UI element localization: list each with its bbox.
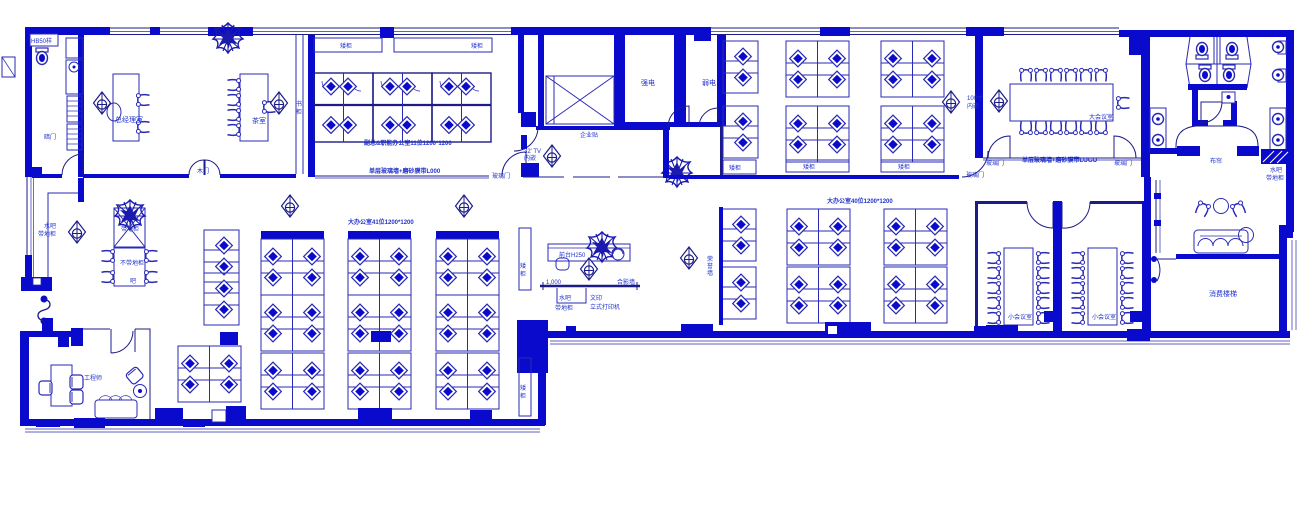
svg-text:大办公室40位1200*1200: 大办公室40位1200*1200	[827, 197, 893, 205]
svg-text:弱电: 弱电	[702, 78, 716, 87]
svg-text:100寸: 100寸	[967, 94, 983, 102]
svg-text:大办公室41位1200*1200: 大办公室41位1200*1200	[348, 218, 414, 226]
svg-text:文印: 文印	[590, 294, 602, 302]
svg-text:玻璃门: 玻璃门	[1114, 159, 1132, 167]
svg-text:内嵌: 内嵌	[524, 154, 536, 162]
svg-text:合影墙: 合影墙	[617, 278, 635, 286]
svg-text:吧: 吧	[130, 278, 136, 285]
svg-text:矮柜: 矮柜	[520, 262, 526, 278]
svg-text:玻璃门: 玻璃门	[986, 159, 1004, 167]
svg-text:小会议室: 小会议室	[1008, 313, 1032, 321]
svg-text:立式打印机: 立式打印机	[590, 303, 620, 311]
svg-text:水吧: 水吧	[559, 294, 571, 302]
svg-text:暗门: 暗门	[44, 133, 56, 141]
svg-text:大会议室: 大会议室	[1089, 113, 1113, 121]
svg-text:木门: 木门	[197, 167, 209, 175]
svg-text:企业贴: 企业贴	[580, 131, 598, 139]
svg-text:书柜: 书柜	[296, 100, 302, 116]
svg-text:单层玻璃墙+磨砂膜带L000: 单层玻璃墙+磨砂膜带L000	[369, 167, 441, 175]
svg-text:布帘: 布帘	[1210, 157, 1222, 165]
svg-text:茶室: 茶室	[252, 116, 266, 125]
svg-text:水吧: 水吧	[1270, 166, 1282, 174]
svg-text:矮柜: 矮柜	[471, 42, 483, 50]
svg-text:矮柜: 矮柜	[340, 42, 352, 50]
svg-text:荣誉墙: 荣誉墙	[707, 255, 713, 277]
svg-text:矮柜: 矮柜	[729, 164, 741, 172]
svg-text:消费楼梯: 消费楼梯	[1209, 289, 1237, 298]
svg-text:矮柜: 矮柜	[803, 163, 815, 171]
svg-text:矮柜: 矮柜	[898, 163, 910, 171]
svg-text:内嵌: 内嵌	[967, 102, 979, 110]
svg-text:1,000: 1,000	[546, 280, 562, 286]
svg-text:带地柜: 带地柜	[1266, 174, 1284, 182]
svg-text:水吧: 水吧	[44, 222, 56, 230]
svg-text:小会议室: 小会议室	[1092, 313, 1116, 321]
svg-text:带地柜: 带地柜	[555, 304, 573, 312]
svg-text:玻璃门: 玻璃门	[966, 171, 984, 179]
svg-text:带地柜: 带地柜	[38, 230, 56, 238]
svg-text:带地柜: 带地柜	[121, 225, 139, 233]
svg-text:玻璃门: 玻璃门	[492, 172, 510, 180]
svg-text:矮柜: 矮柜	[520, 384, 526, 400]
svg-text:单层玻璃墙+磨砂膜带LOGO: 单层玻璃墙+磨砂膜带LOGO	[1022, 156, 1098, 164]
svg-text:不带地柜: 不带地柜	[120, 259, 144, 267]
svg-text:强电: 强电	[641, 78, 655, 87]
svg-text:总经理室: 总经理室	[115, 115, 143, 124]
svg-text:副总&职能办公室11位1200*1200: 副总&职能办公室11位1200*1200	[364, 139, 452, 147]
svg-text:32' TV: 32' TV	[524, 149, 541, 155]
svg-text:工程师: 工程师	[84, 374, 102, 382]
svg-text:HB50样: HB50样	[31, 37, 52, 45]
